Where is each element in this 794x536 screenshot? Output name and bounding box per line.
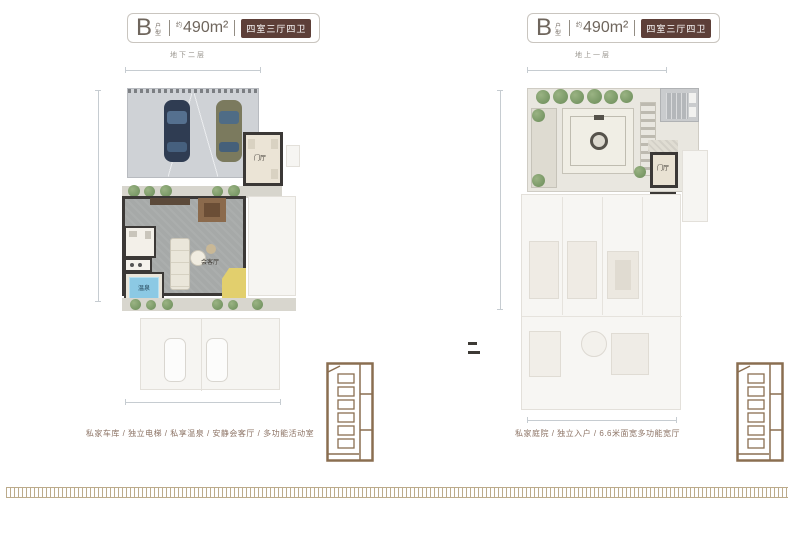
right-floor-label: 地上一层 (548, 50, 638, 60)
bush (532, 174, 545, 187)
canopy-roof (660, 88, 699, 122)
ghost-divider (602, 197, 603, 315)
ghost-rug (567, 241, 597, 299)
ghost-divider (522, 316, 682, 317)
ghost-ground-floor (521, 194, 681, 410)
dimension-line (527, 420, 677, 421)
ghost-rug (529, 241, 559, 299)
dimension-tick (527, 417, 528, 423)
floorplan-brochure: B 户型 约 490m² 四室三厅四卫 地下二层 (0, 0, 794, 536)
divider (569, 20, 570, 36)
right-caption: 私家庭院 / 独立入户 / 6.6米面宽多功能宽厅 (440, 428, 760, 439)
bush (532, 109, 545, 122)
roof-grille (666, 93, 688, 119)
unit-letter: B (536, 16, 552, 40)
tree (587, 89, 602, 104)
entry-path (648, 140, 678, 152)
scale-mark (468, 351, 480, 354)
ghost-round-motif (581, 331, 607, 357)
bush (634, 166, 646, 178)
plaza (562, 108, 634, 174)
divider (634, 20, 635, 36)
dimension-tick (497, 309, 503, 310)
scale-mark (468, 342, 477, 345)
area-value: 490m² (583, 18, 628, 37)
bench (594, 115, 604, 120)
dimension-tick (666, 67, 667, 73)
dimension-line (527, 70, 667, 71)
tree (570, 90, 584, 104)
ghost-table (615, 260, 631, 290)
dimension-tick (676, 417, 677, 423)
meander-border (6, 487, 788, 498)
medallion-fountain (590, 132, 608, 150)
tree (536, 90, 550, 104)
right-unit-header: B 户型 约 490m² 四室三厅四卫 (527, 13, 720, 43)
dimension-tick (527, 67, 528, 73)
tree (620, 90, 633, 103)
right-panel: B 户型 约 490m² 四室三厅四卫 地上一层 (0, 0, 794, 536)
roof-block (689, 93, 696, 103)
ghost-rug (611, 333, 649, 375)
ghost-dining (607, 251, 639, 299)
entry-hall-label: 门厅 (657, 166, 669, 172)
unit-suffix: 户型 (555, 24, 563, 38)
ghost-divider (642, 197, 643, 315)
area-group: 约 490m² (576, 18, 628, 37)
tree (604, 90, 618, 104)
ghost-wing (682, 150, 708, 222)
tree (553, 89, 568, 104)
layout-badge: 四室三厅四卫 (641, 19, 711, 38)
ghost-rug (529, 331, 561, 377)
dimension-tick (497, 90, 503, 91)
dimension-line (500, 90, 501, 310)
approx-label: 约 (576, 20, 582, 29)
roof-block (689, 107, 696, 117)
ghost-divider (562, 197, 563, 315)
site-key-map (736, 362, 784, 462)
